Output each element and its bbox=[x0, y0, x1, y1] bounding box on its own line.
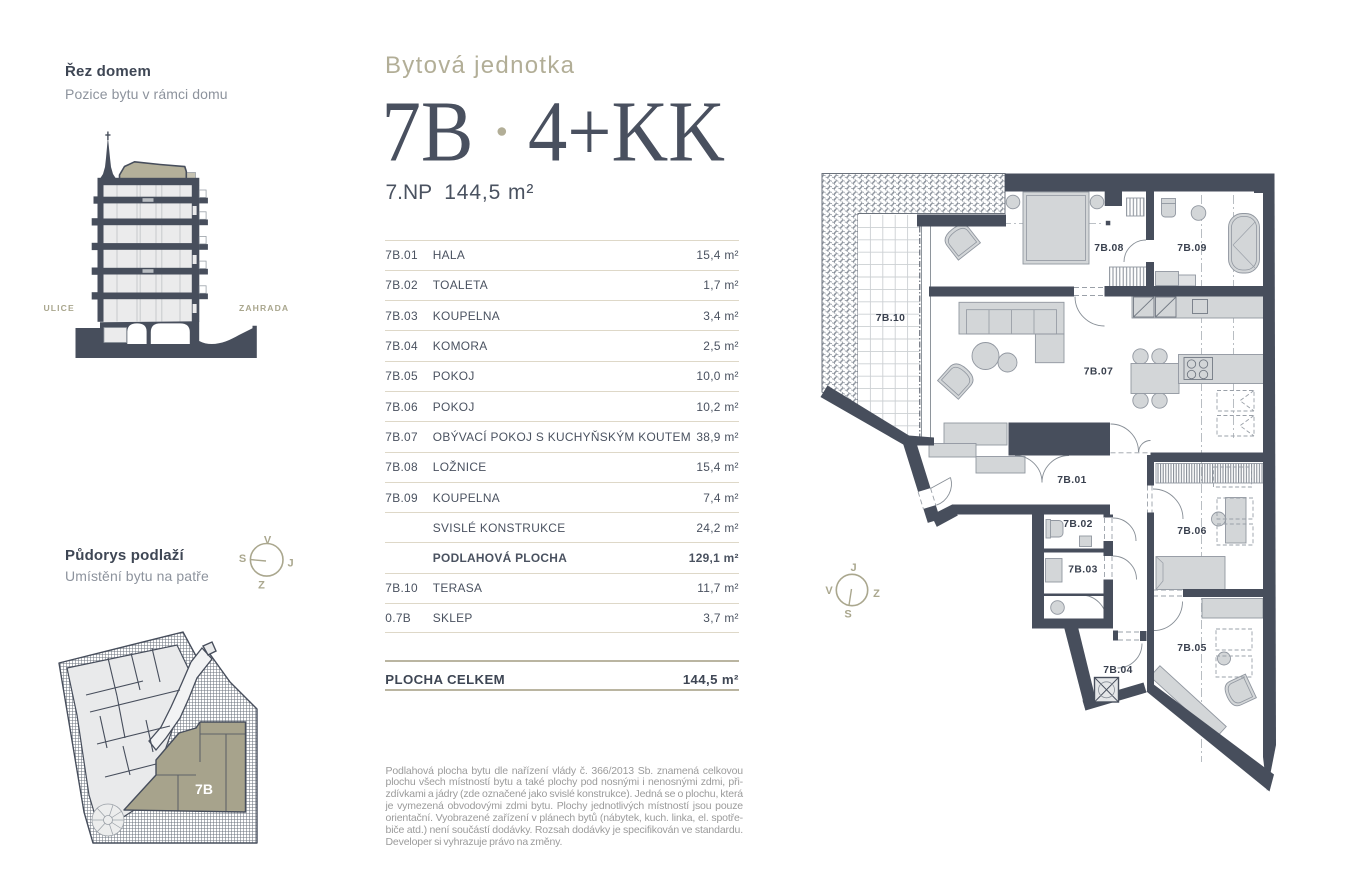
svg-text:4+KK: 4+KK bbox=[528, 90, 725, 175]
svg-text:7B.09: 7B.09 bbox=[1177, 243, 1206, 254]
svg-text:7B.08: 7B.08 bbox=[1094, 243, 1123, 254]
svg-text:V: V bbox=[264, 535, 272, 547]
svg-text:7B.01: 7B.01 bbox=[1057, 475, 1086, 486]
svg-text:S: S bbox=[239, 553, 246, 565]
svg-text:7B.06: 7B.06 bbox=[1177, 526, 1206, 537]
svg-text:ULICE: ULICE bbox=[44, 303, 75, 313]
svg-text:7B.04: 7B.04 bbox=[1103, 665, 1132, 676]
svg-text:7B.03: 7B.03 bbox=[1068, 565, 1097, 576]
svg-text:7B: 7B bbox=[382, 90, 474, 175]
svg-text:7B.07: 7B.07 bbox=[1084, 367, 1113, 378]
svg-text:7B.02: 7B.02 bbox=[1063, 519, 1092, 530]
svg-text:ZAHRADA: ZAHRADA bbox=[239, 303, 289, 313]
svg-text:7B.10: 7B.10 bbox=[876, 313, 905, 324]
svg-text:7B.05: 7B.05 bbox=[1177, 643, 1206, 654]
svg-text:J: J bbox=[287, 558, 293, 570]
svg-text:7B: 7B bbox=[195, 781, 213, 797]
svg-text:Z: Z bbox=[258, 580, 265, 592]
